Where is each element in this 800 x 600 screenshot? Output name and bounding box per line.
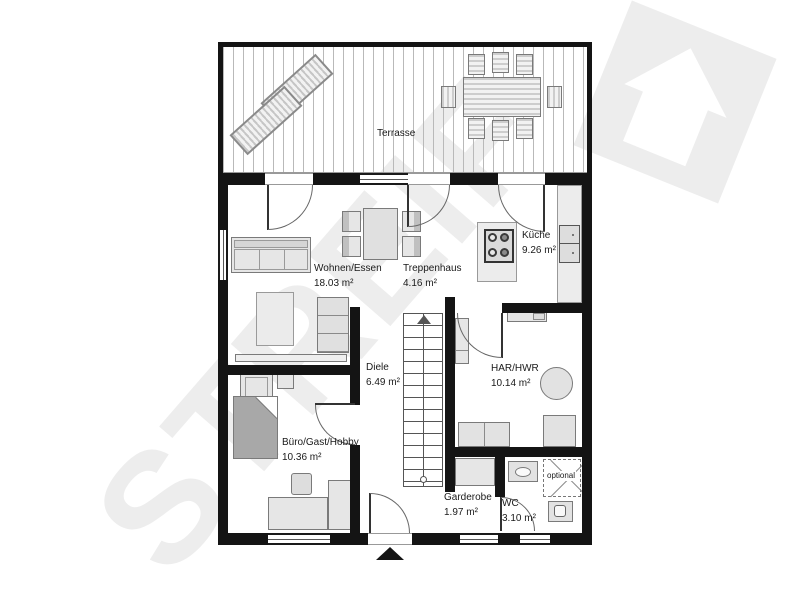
- window: [218, 230, 228, 280]
- wall: [445, 447, 592, 457]
- terrace-table: [463, 77, 541, 117]
- burner-icon: [500, 248, 509, 257]
- wall: [412, 533, 460, 545]
- washing-machine: [543, 415, 576, 447]
- dining-chair: [342, 236, 361, 257]
- room-label-wohnen-essen: Wohnen/Essen18.03 m²: [314, 261, 382, 291]
- side-table: [277, 374, 294, 389]
- wall: [218, 280, 228, 545]
- sofa: [231, 237, 311, 273]
- stair-walk-line: [423, 314, 424, 486]
- wall: [450, 173, 498, 185]
- room-label-garderobe: Garderobe1.97 m²: [444, 490, 492, 520]
- burner-icon: [488, 233, 497, 242]
- door-threshold: [265, 173, 313, 185]
- door-threshold: [498, 173, 545, 185]
- terrace-chair: [492, 120, 509, 141]
- room-label-diele: Diele6.49 m²: [366, 360, 400, 390]
- room-label-terrasse: Terrasse: [377, 126, 415, 141]
- terrace-chair: [468, 118, 485, 139]
- wall: [498, 533, 520, 545]
- wall: [502, 303, 592, 313]
- wall: [495, 457, 505, 497]
- wall: [582, 173, 592, 545]
- rug: [256, 292, 294, 346]
- room-label-buero-gast-hobby: Büro/Gast/Hobby10.36 m²: [282, 435, 359, 465]
- terrace-chair: [441, 86, 456, 108]
- terrace-chair: [516, 54, 533, 75]
- cooktop: [484, 229, 514, 263]
- wall: [350, 307, 360, 405]
- shelf: [507, 312, 547, 322]
- wall: [550, 533, 592, 545]
- burner-icon: [500, 233, 509, 242]
- wall: [330, 533, 368, 545]
- wall: [313, 173, 360, 185]
- desk: [268, 497, 328, 530]
- staircase: [403, 313, 443, 487]
- cabinet: [458, 422, 510, 447]
- room-label-wc: WC3.10 m²: [502, 496, 536, 526]
- dining-chair: [342, 211, 361, 232]
- wardrobe: [455, 458, 495, 486]
- room-label-har-hwr: HAR/HWR10.14 m²: [491, 361, 539, 391]
- wall: [218, 173, 228, 230]
- door-threshold: [408, 173, 450, 185]
- terrace-wall-top: [218, 42, 592, 47]
- entrance-marker-icon: [376, 547, 404, 560]
- terrace-chair: [468, 54, 485, 75]
- terrace-chair: [492, 52, 509, 73]
- streif-logo-icon: [573, 0, 776, 203]
- dining-table: [363, 208, 398, 260]
- room-label-treppenhaus: Treppenhaus4.16 m²: [403, 261, 462, 291]
- stair-up-arrow-icon: [417, 315, 431, 324]
- burner-icon: [488, 248, 497, 257]
- wall: [445, 297, 455, 492]
- optional-label: optional: [546, 471, 576, 481]
- window: [268, 533, 330, 545]
- window: [360, 173, 408, 185]
- floor-plan: STREIF: [0, 0, 800, 600]
- desk-chair: [291, 473, 312, 495]
- window: [460, 533, 498, 545]
- window: [520, 533, 550, 545]
- terrace-wall-right: [587, 47, 592, 173]
- dining-chair: [402, 236, 421, 257]
- stair-start-circle: [420, 476, 427, 483]
- toilet: [548, 501, 573, 522]
- house-icon: [601, 27, 748, 177]
- chaise-lounge: [317, 297, 349, 353]
- sideboard: [235, 354, 347, 362]
- entrance-door-swing: [370, 493, 410, 533]
- terrace-chair: [547, 86, 562, 108]
- room-label-kueche: Küche9.26 m²: [522, 228, 556, 258]
- terrace-chair: [516, 118, 533, 139]
- water-tank: [540, 367, 573, 400]
- wall: [228, 365, 350, 375]
- entrance-threshold: [368, 533, 412, 545]
- washbasin: [508, 461, 538, 482]
- terrace-wall-left: [218, 47, 223, 173]
- fridge: [559, 225, 580, 263]
- wall: [218, 533, 268, 545]
